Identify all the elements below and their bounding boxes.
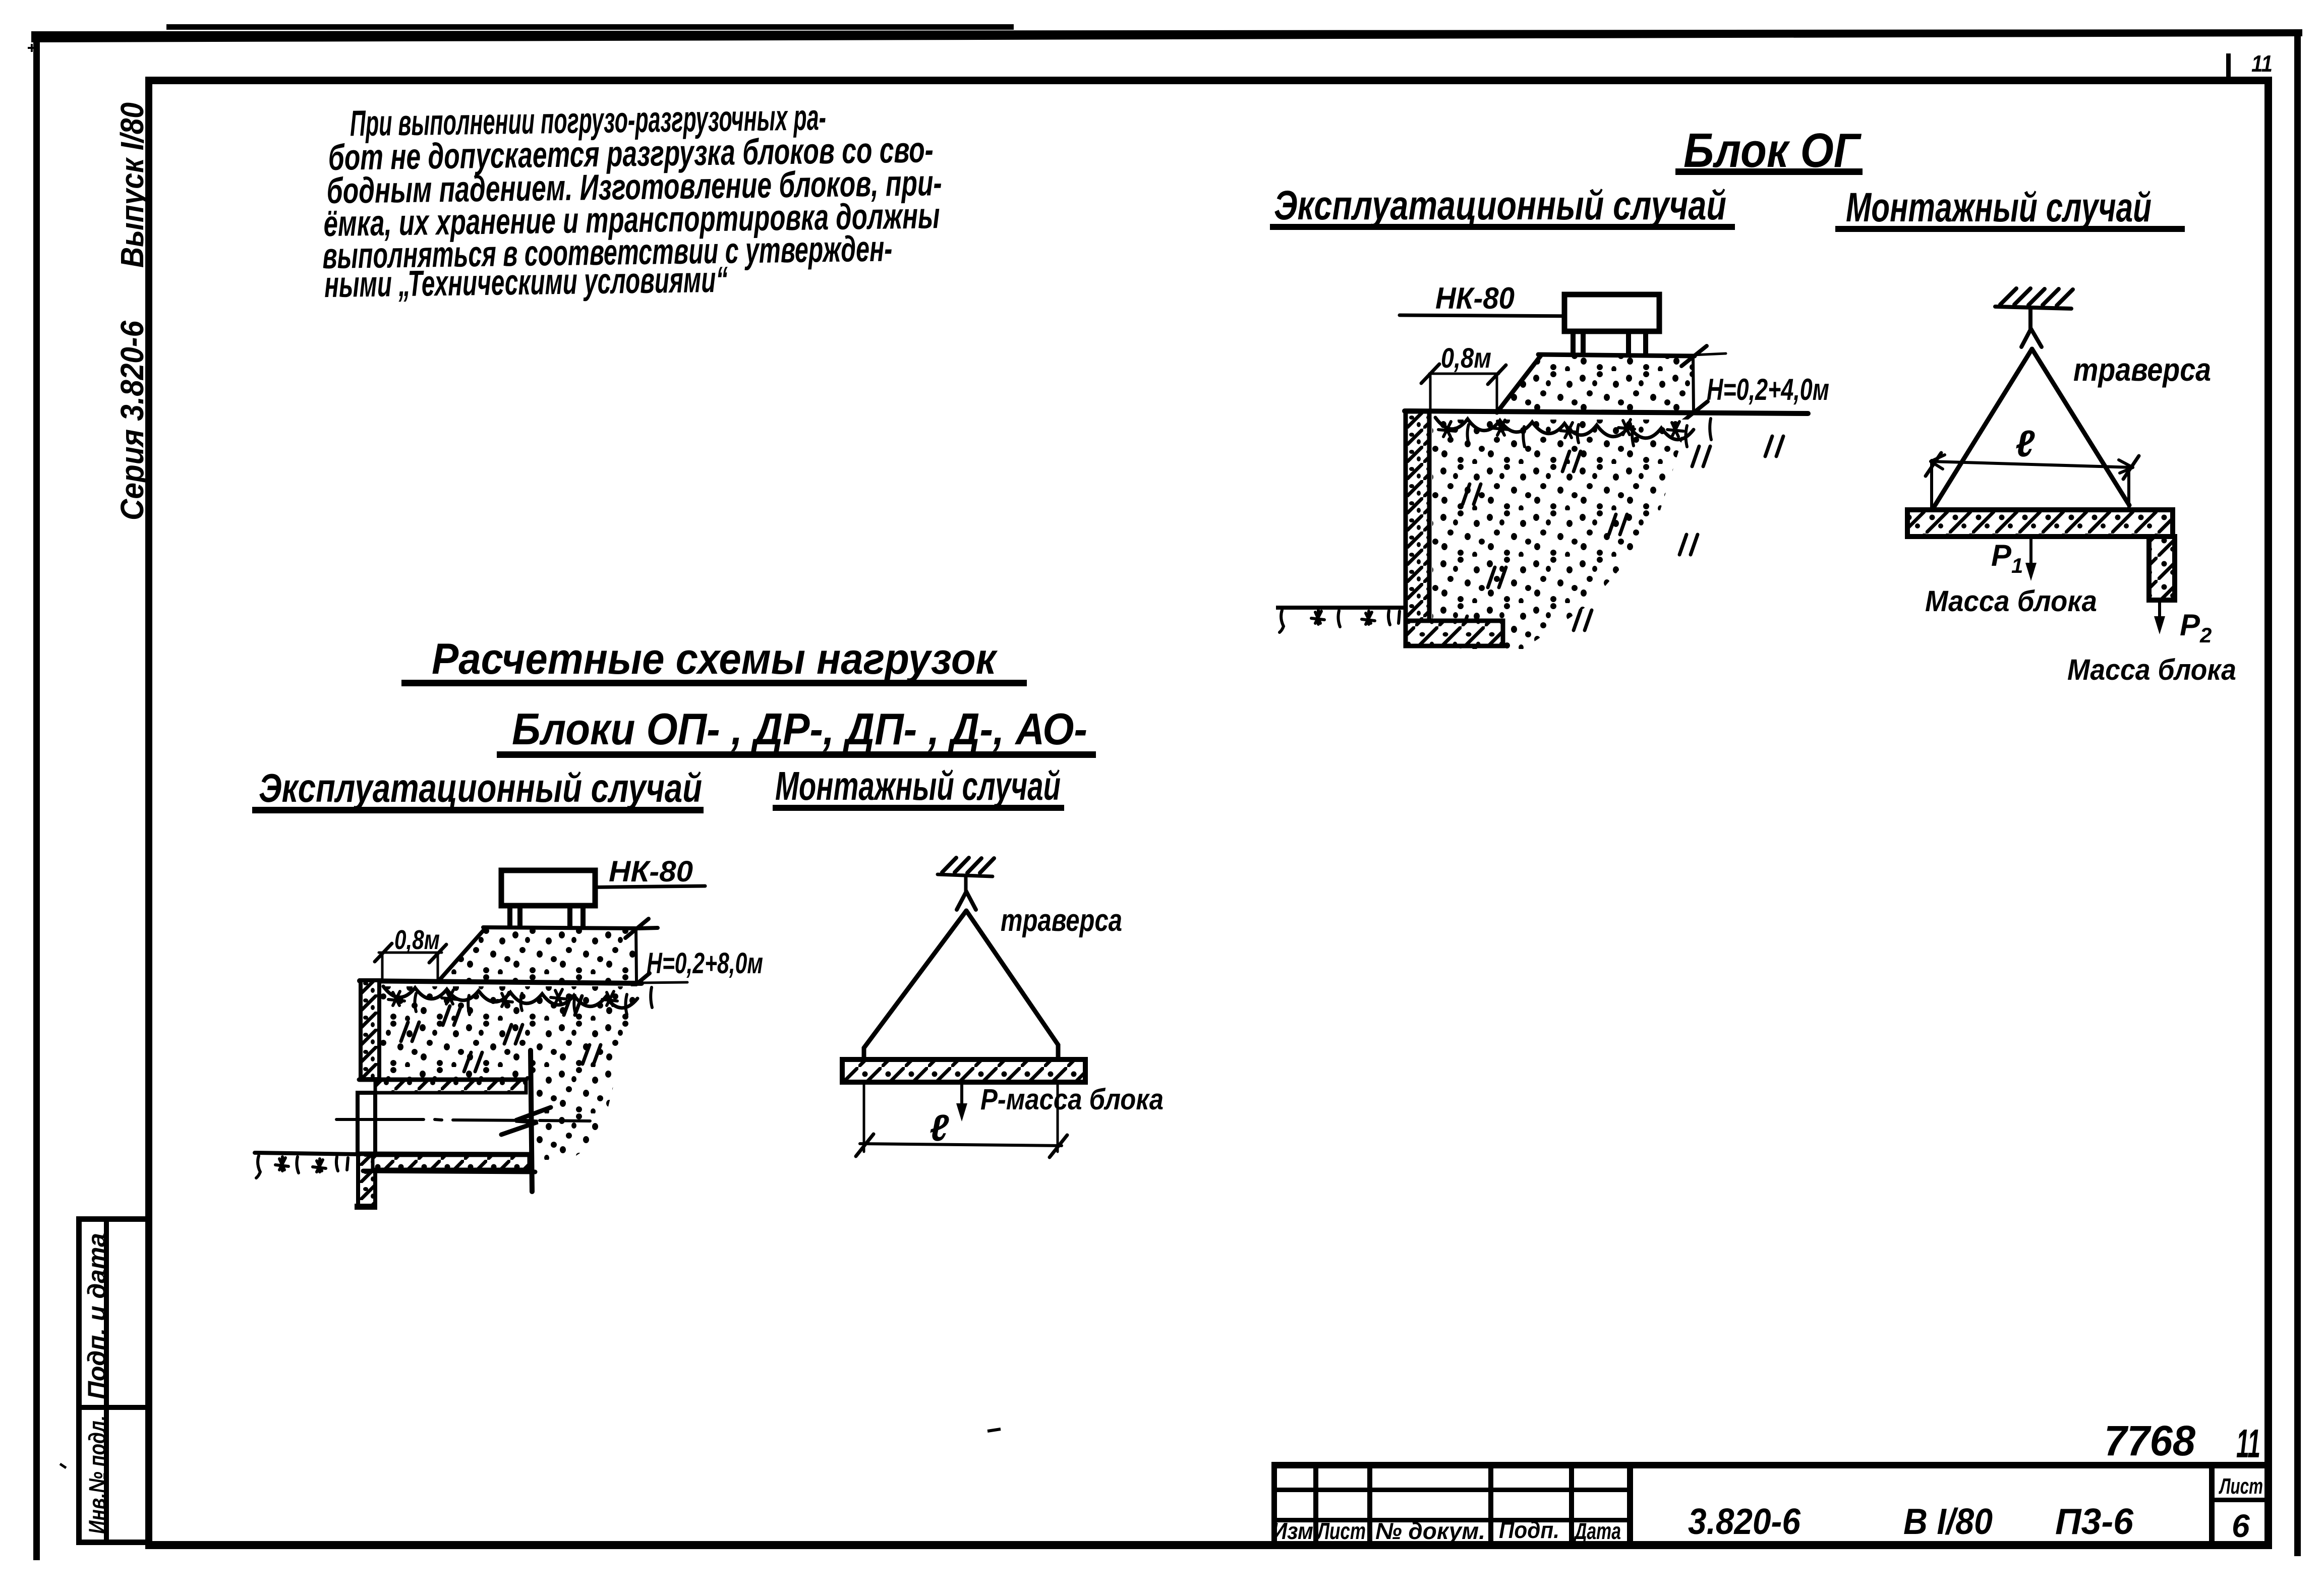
svg-text:Подп.: Подп. <box>1499 1517 1559 1543</box>
svg-text:0,8м: 0,8м <box>1441 342 1491 374</box>
svg-text:П3-6: П3-6 <box>2055 1502 2134 1542</box>
svg-text:Монтажный случай: Монтажный случай <box>775 763 1061 808</box>
svg-text:Расчетные схемы нагрузок: Расчетные схемы нагрузок <box>432 635 998 683</box>
svg-text:траверса: траверса <box>1001 903 1122 938</box>
svg-text:ℓ: ℓ <box>929 1107 949 1149</box>
svg-text:НК-80: НК-80 <box>609 855 693 888</box>
svg-text:6: 6 <box>2232 1508 2250 1544</box>
svg-text:Масса блока: Масса блока <box>2067 654 2236 686</box>
svg-text:Блоки ОП- , ДР-, ДП- , Д-,: Блоки ОП- , ДР-, ДП- , Д-, АО- <box>512 704 1087 754</box>
svg-text:0,8м: 0,8м <box>394 925 440 955</box>
svg-text:Выпуск I/80: Выпуск I/80 <box>114 102 150 268</box>
svg-text:Н=0,2+4,0м: Н=0,2+4,0м <box>1707 373 1829 406</box>
svg-text:Инв.№ подл.: Инв.№ подл. <box>84 1415 110 1534</box>
svg-text:Н=0,2+8,0м: Н=0,2+8,0м <box>647 947 763 980</box>
svg-text:Лист: Лист <box>1316 1518 1366 1544</box>
svg-text:3.820-6: 3.820-6 <box>1688 1502 1801 1542</box>
svg-text:Серия 3.820-6: Серия 3.820-6 <box>114 321 150 520</box>
svg-text:ными „Техническими условиями“: ными „Техническими условиями“ <box>324 260 728 305</box>
svg-text:Дата: Дата <box>1573 1518 1621 1544</box>
svg-text:Подп. и дата: Подп. и дата <box>83 1233 111 1399</box>
svg-text:Эксплуатационный случай: Эксплуатационный случай <box>1274 183 1726 228</box>
svg-text:№ докум.: № докум. <box>1375 1518 1485 1544</box>
svg-text:7768: 7768 <box>2104 1417 2195 1464</box>
svg-text:НК-80: НК-80 <box>1435 281 1515 315</box>
svg-text:В I/80: В I/80 <box>1903 1502 1993 1542</box>
svg-text:Р-масса блока: Р-масса блока <box>980 1083 1164 1116</box>
svg-text:Монтажный случай: Монтажный случай <box>1846 185 2152 230</box>
svg-text:Масса блока: Масса блока <box>1925 585 2097 618</box>
svg-text:Лист: Лист <box>2219 1474 2263 1499</box>
svg-text:ℓ: ℓ <box>2015 423 2035 464</box>
svg-text:Эксплуатационный случай: Эксплуатационный случай <box>259 765 702 810</box>
svg-text:Изм: Изм <box>1272 1518 1313 1544</box>
svg-text:11: 11 <box>2251 50 2273 77</box>
svg-text:11: 11 <box>2236 1421 2260 1466</box>
svg-text:траверса: траверса <box>2073 351 2211 388</box>
